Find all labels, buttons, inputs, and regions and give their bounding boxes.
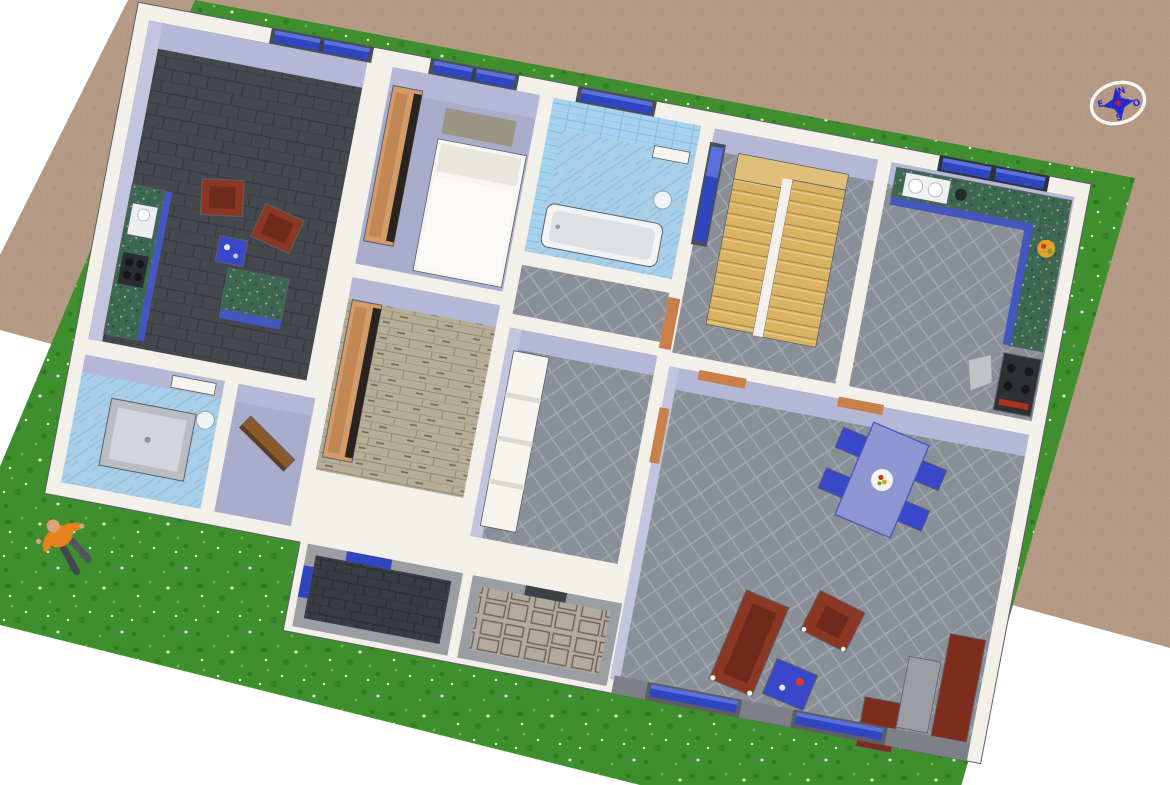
room-shower-bathroom — [61, 355, 225, 509]
floorplan-canvas: N S E O — [0, 0, 1170, 785]
armchair — [200, 179, 244, 217]
side-table — [215, 236, 247, 267]
floorplan-render-stage: N S E O — [0, 0, 1170, 785]
